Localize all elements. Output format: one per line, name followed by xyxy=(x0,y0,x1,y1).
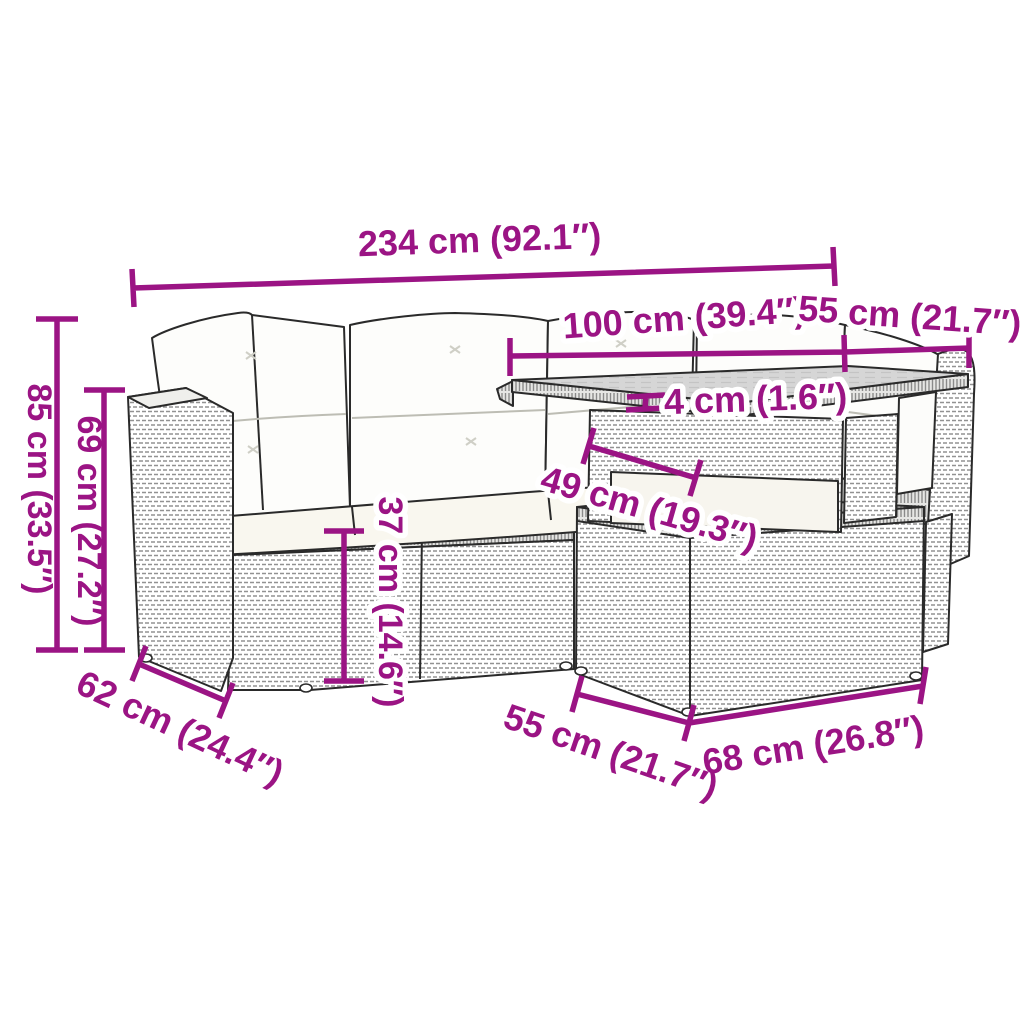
dim-glass-thickness-label: 4 cm (1.6″) xyxy=(663,375,848,422)
furniture xyxy=(128,312,975,716)
sofa-foot xyxy=(300,684,312,692)
corner-base-edge xyxy=(923,514,952,652)
ottoman-foot xyxy=(910,672,922,680)
sofa-foot xyxy=(560,662,572,670)
corner-seat-cushion-sliver xyxy=(897,392,936,494)
dimension-diagram: 234 cm (92.1″) 100 cm (39.4″) 55 cm (21.… xyxy=(0,0,1024,1024)
ottoman-foot xyxy=(575,667,587,675)
table-right-leg xyxy=(844,414,898,523)
dim-back-height-label: 69 cm (27.2″) xyxy=(70,416,108,627)
furniture-illustration: 234 cm (92.1″) 100 cm (39.4″) 55 cm (21.… xyxy=(0,0,1024,1024)
dim-total-height-label: 85 cm (33.5″) xyxy=(20,384,58,595)
dim-total-width-label: 234 cm (92.1″) xyxy=(357,215,602,264)
dim-seat-height-label: 37 cm (14.6″) xyxy=(371,497,409,708)
ottoman-left-face xyxy=(576,507,690,716)
